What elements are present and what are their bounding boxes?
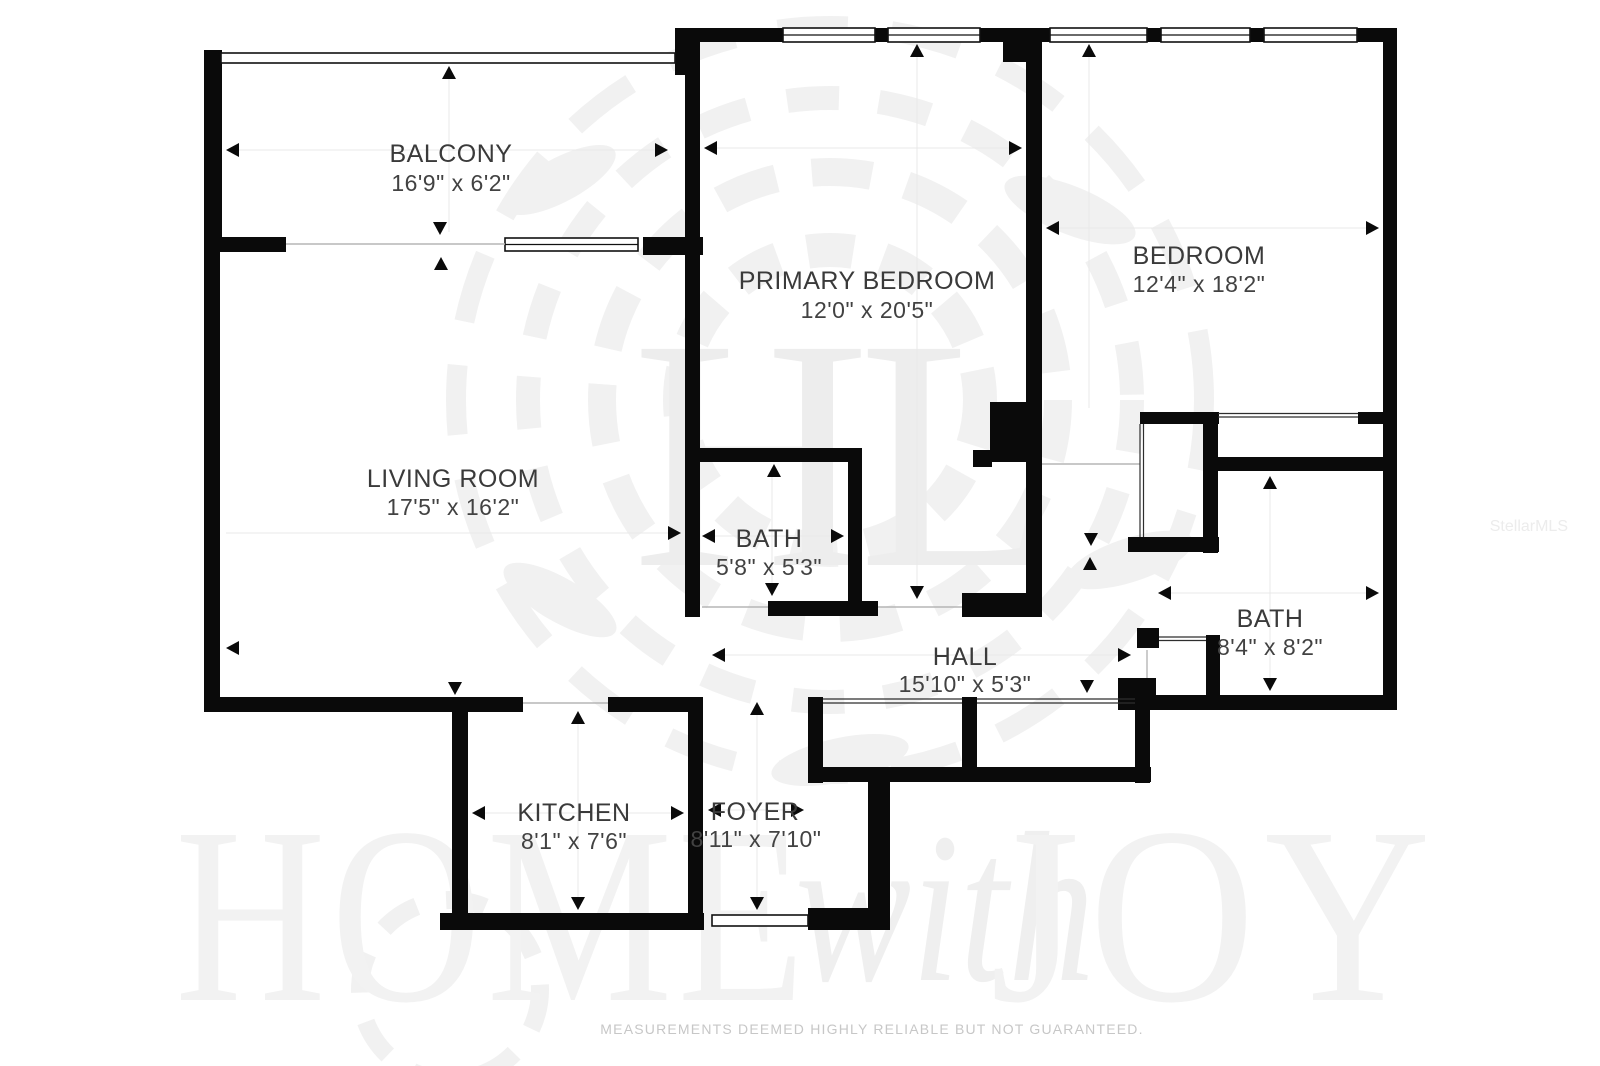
entry-door: [712, 915, 808, 926]
room-dims-kitchen: 8'1" x 7'6": [521, 828, 627, 854]
room-dims-balcony: 16'9" x 6'2": [391, 170, 510, 196]
balcony-railing: [221, 53, 675, 63]
room-dims-foyer: 8'11" x 7'10": [691, 826, 822, 852]
room-name-kitchen: KITCHEN: [517, 799, 630, 827]
room-name-bath-2: BATH: [1237, 605, 1304, 633]
room-name-foyer: FOYER: [711, 798, 800, 826]
room-dims-bedroom: 12'4" x 18'2": [1133, 271, 1266, 297]
room-dims-bath-2: 8'4" x 8'2": [1217, 634, 1323, 660]
room-dims-living-room: 17'5" x 16'2": [387, 494, 520, 520]
room-name-balcony: BALCONY: [390, 140, 513, 168]
room-name-bedroom: BEDROOM: [1133, 242, 1266, 270]
brand-word2-watermark: JOY: [990, 775, 1440, 1055]
floor-plan-page: HL HOME with JOY StellarMLS: [0, 0, 1600, 1066]
room-dims-bath: 5'8" x 5'3": [716, 554, 822, 580]
disclaimer-text: MEASUREMENTS DEEMED HIGHLY RELIABLE BUT …: [600, 1021, 1143, 1037]
room-dims-hall: 15'10" x 5'3": [899, 671, 1032, 697]
mls-watermark: StellarMLS: [1490, 518, 1568, 535]
room-name-living-room: LIVING ROOM: [367, 465, 539, 493]
room-name-bath: BATH: [736, 525, 803, 553]
room-dims-primary-bedroom: 12'0" x 20'5": [801, 297, 934, 323]
floor-plan-canvas: HL HOME with JOY StellarMLS: [0, 0, 1600, 1066]
room-name-primary-bedroom: PRIMARY BEDROOM: [739, 267, 996, 295]
room-name-hall: HALL: [933, 643, 998, 671]
